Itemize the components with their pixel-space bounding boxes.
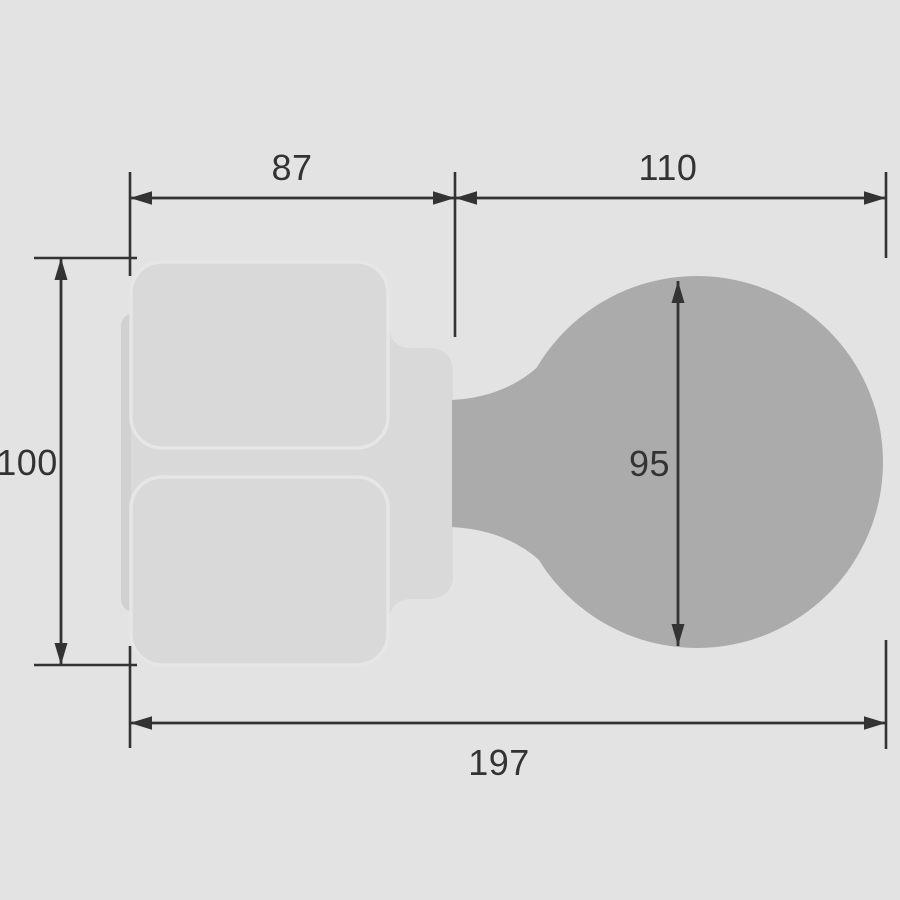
dimension-label-knob-depth: 110: [639, 147, 698, 188]
dimension-label-knob-diameter: 95: [629, 443, 670, 484]
backplate-top-section: [131, 262, 388, 448]
dimension-label-plate-width: 87: [271, 147, 312, 188]
backplate-bottom-section: [131, 477, 388, 665]
dimension-diagram: 87 110 100 95 197: [0, 0, 900, 900]
knob-ball: [511, 276, 883, 648]
dimension-label-total-depth: 197: [468, 742, 530, 783]
dimension-label-plate-height: 100: [0, 442, 58, 483]
collar: [388, 326, 453, 621]
diagram-canvas: 87 110 100 95 197: [0, 0, 900, 900]
